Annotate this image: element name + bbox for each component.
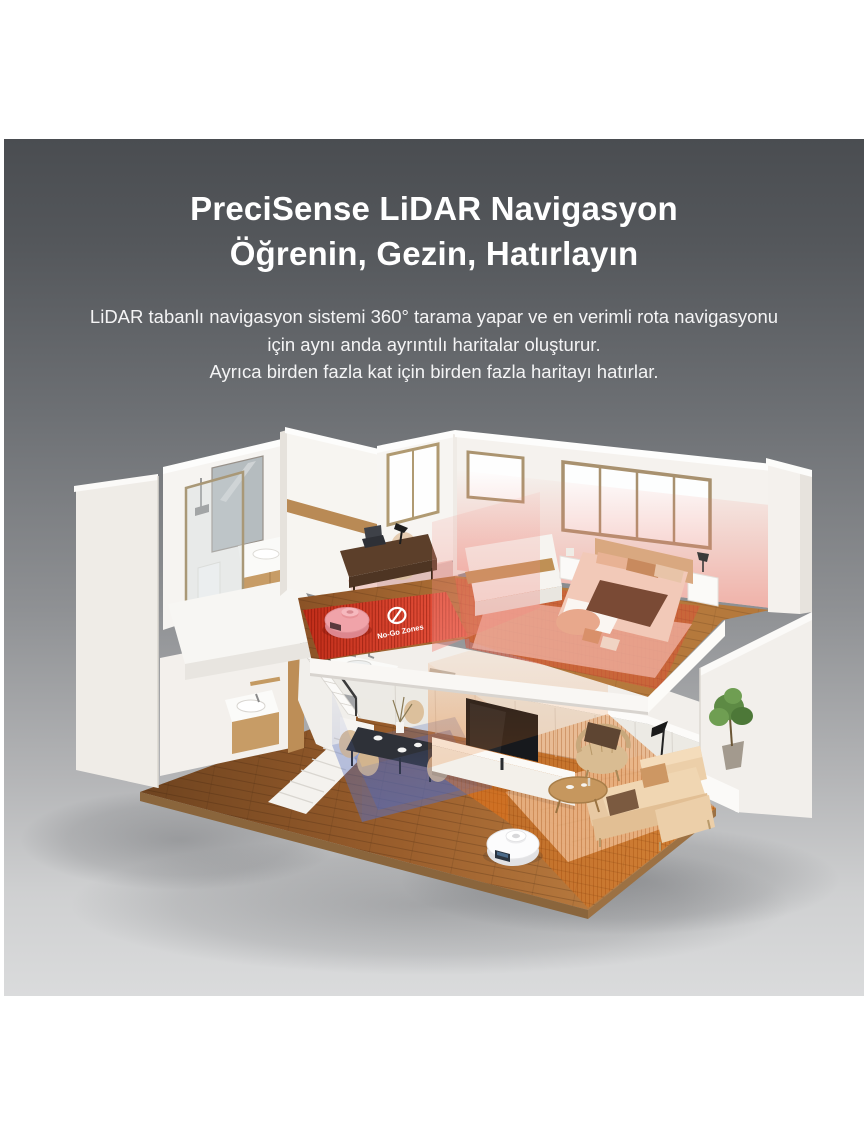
left-exterior-wall xyxy=(76,476,158,788)
robot-vacuum-lower-floor xyxy=(483,829,543,866)
upper-right-wall xyxy=(766,458,812,614)
house-cutaway-illustration: No-Go Zones xyxy=(0,0,868,1139)
robot-vacuum-upper-floor xyxy=(322,608,372,639)
vase xyxy=(396,722,404,733)
product-marketing-image: PreciSense LiDAR Navigasyon Öğrenin, Gez… xyxy=(0,0,868,1139)
plant-pot xyxy=(722,741,744,770)
